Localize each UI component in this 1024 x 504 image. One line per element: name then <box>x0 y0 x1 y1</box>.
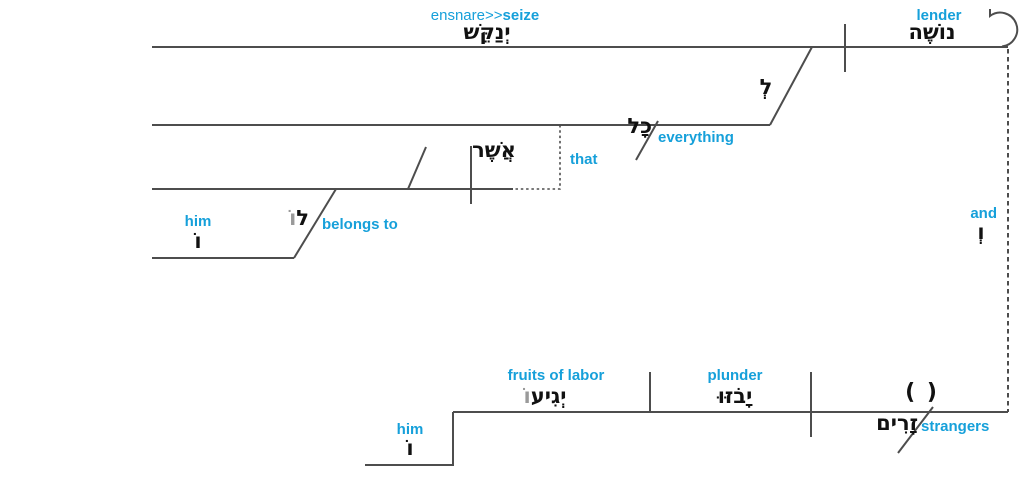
subject1-hebrew[interactable]: נוֹשֶׁה <box>882 20 982 44</box>
verb2-hebrew[interactable]: יָבֹזּוּ <box>675 384 795 408</box>
verb2-gloss[interactable]: plunder <box>675 368 795 385</box>
object2-gloss[interactable]: fruits of labor <box>476 368 636 385</box>
lender-hook-curve <box>990 9 1017 47</box>
relative-clause-slash <box>408 147 426 189</box>
preposition-hebrew[interactable]: לְ <box>736 75 796 99</box>
sentence-diagram: ensnare>>seize יְנַקֵּשׁ lender נוֹשֶׁה … <box>0 0 1024 504</box>
relative-gloss[interactable]: that <box>570 152 598 169</box>
object2-hebrew-suffix: וֹ <box>524 384 531 408</box>
subject2-placeholder: ( ) <box>882 381 962 405</box>
him2-hebrew[interactable]: וֹ <box>380 436 440 460</box>
conjunction-hebrew[interactable]: וְ <box>951 220 1011 244</box>
him1-hebrew[interactable]: וֹ <box>168 229 228 253</box>
verb1-hebrew[interactable]: יְנַקֵּשׁ <box>387 20 587 44</box>
object2-hebrew-base: יְגִיע <box>531 384 567 408</box>
belongs-to-hebrew-base: ל <box>296 206 309 230</box>
object1-hebrew[interactable]: כָל <box>592 114 652 138</box>
relative-hebrew[interactable]: אֲשֶׁר <box>454 138 534 162</box>
subject2-gloss[interactable]: strangers <box>921 419 989 436</box>
subject2-hebrew[interactable]: זָרִים <box>838 411 918 435</box>
belongs-to-gloss[interactable]: belongs to <box>322 217 398 234</box>
belongs-to-hebrew[interactable]: לוֹ <box>249 206 309 230</box>
object1-gloss[interactable]: everything <box>658 130 734 147</box>
object2-hebrew[interactable]: יְגִיעוֹ <box>465 384 625 408</box>
